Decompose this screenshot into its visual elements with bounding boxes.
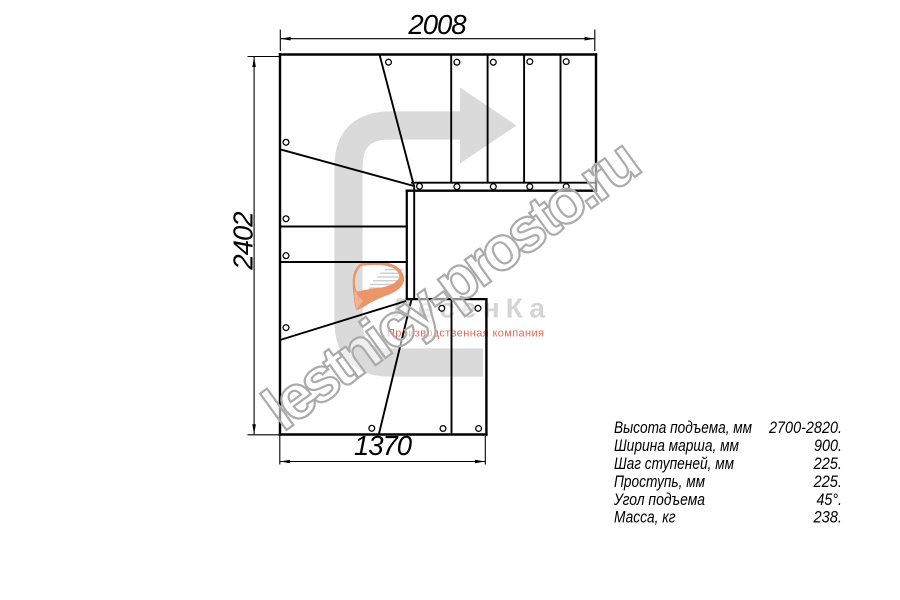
svg-text:900.: 900.	[814, 436, 842, 455]
svg-text:Угол подъема: Угол подъема	[613, 490, 705, 509]
svg-text:Ширина марша, мм: Ширина марша, мм	[614, 436, 739, 455]
svg-text:Высота подъема, мм: Высота подъема, мм	[614, 418, 752, 437]
svg-text:2700-2820.: 2700-2820.	[768, 418, 842, 437]
svg-text:Проступь, мм: Проступь, мм	[614, 472, 705, 491]
svg-text:238.: 238.	[813, 508, 842, 527]
svg-text:2402: 2402	[228, 212, 259, 271]
svg-text:1370: 1370	[354, 430, 413, 461]
svg-text:2008: 2008	[407, 9, 467, 40]
svg-text:225.: 225.	[813, 472, 842, 491]
svg-text:225.: 225.	[813, 454, 842, 473]
svg-text:Шаг ступеней, мм: Шаг ступеней, мм	[614, 454, 734, 473]
svg-text:45°.: 45°.	[817, 490, 843, 509]
svg-text:Масса, кг: Масса, кг	[614, 508, 676, 527]
